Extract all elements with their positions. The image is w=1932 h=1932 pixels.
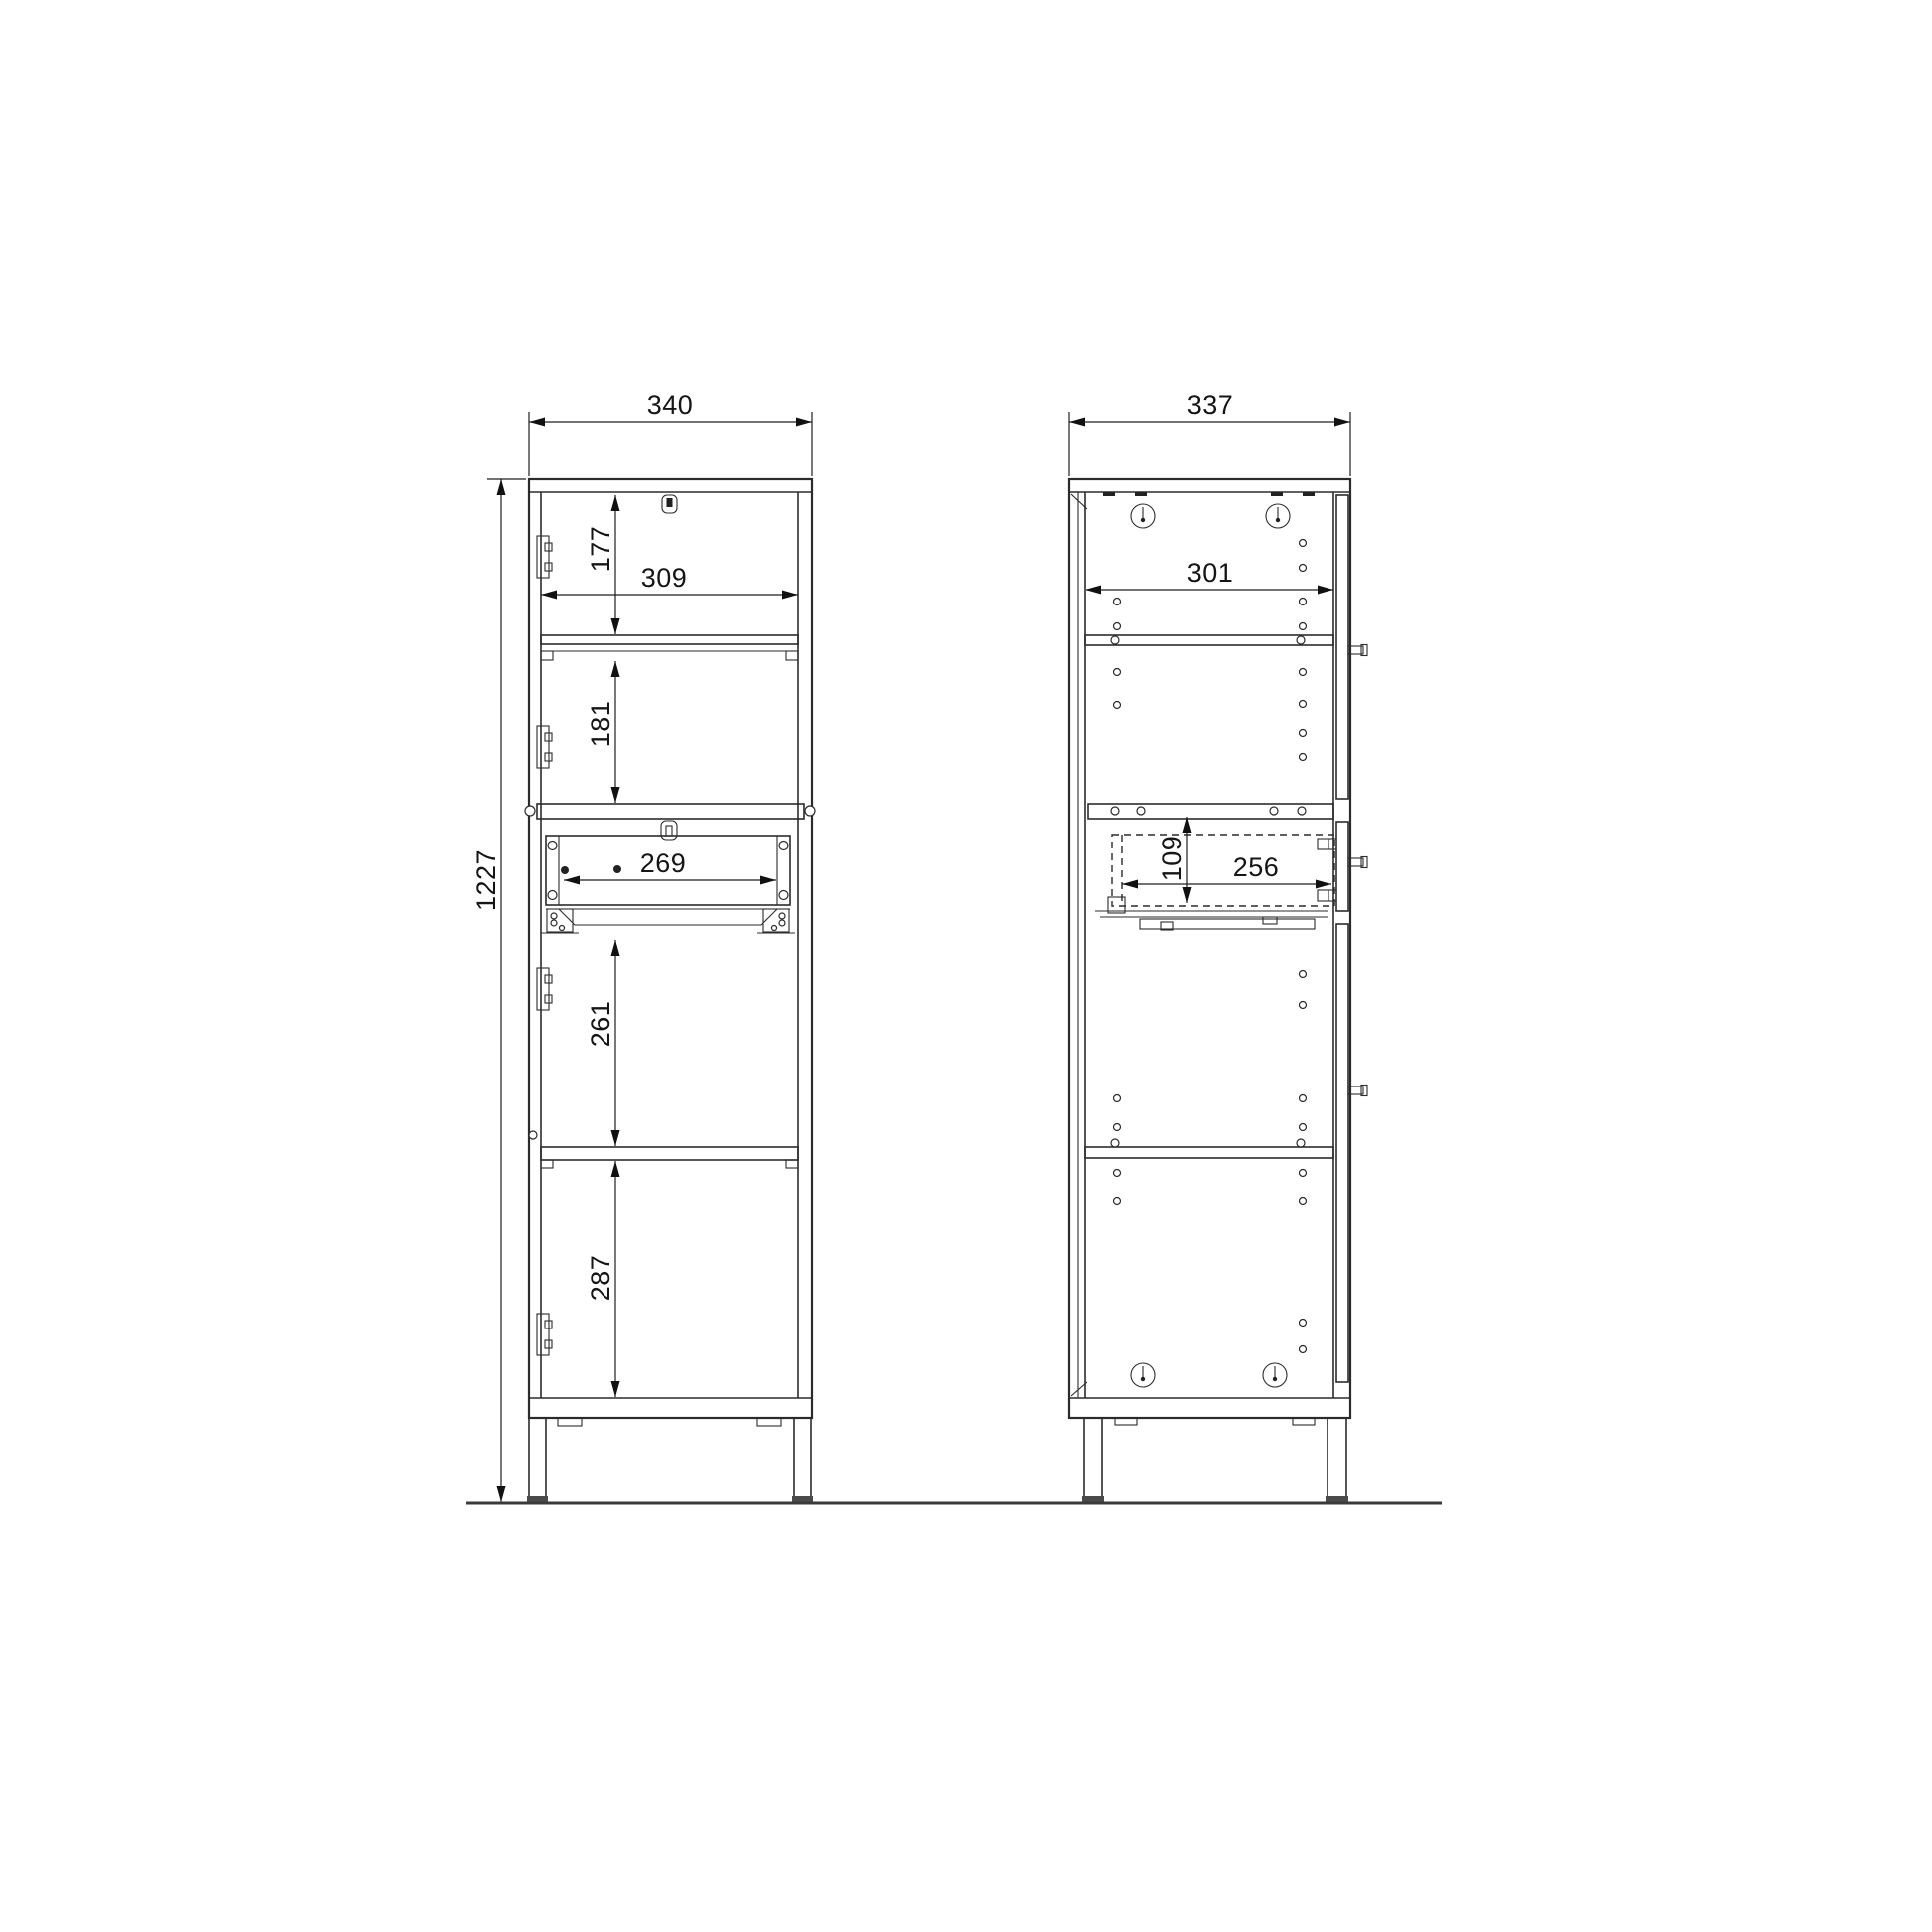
- dim-label-drawer-width: 269: [640, 848, 687, 878]
- fixed-divider-side: [1088, 804, 1333, 819]
- technical-drawing-page: 340 1227: [0, 0, 1932, 1932]
- drawer-runner-side-icon: [1095, 911, 1328, 930]
- dim-drawer-width: 269: [564, 848, 776, 885]
- shelf-pin-holes-left: [1114, 599, 1121, 1205]
- dim-bottom-section: 287: [586, 1161, 620, 1397]
- cabinet-drawing-svg: 340 1227: [0, 0, 1932, 1932]
- leg: [529, 1418, 546, 1498]
- dim-interior-width: 309: [541, 563, 798, 600]
- side-legs: [1082, 1418, 1348, 1503]
- screw-icon: [1266, 504, 1290, 528]
- hinge-icon: [537, 1314, 552, 1355]
- leg: [794, 1418, 811, 1498]
- dim-label-bottom-section: 287: [586, 1255, 615, 1302]
- drawer-runner-icon: [541, 909, 579, 933]
- dim-drawer-height: 109: [1157, 817, 1192, 903]
- dim-label-overall-depth: 337: [1187, 390, 1234, 420]
- dim-overall-width: 340: [529, 390, 812, 476]
- dim-overall-depth: 337: [1069, 390, 1350, 476]
- dim-label-interior-depth: 301: [1187, 558, 1234, 588]
- dim-top-section: 177: [586, 495, 620, 634]
- hinge-icon: [537, 536, 552, 578]
- dim-label-drawer-depth: 256: [1233, 852, 1280, 882]
- dim-label-top-section: 177: [586, 526, 615, 573]
- dim-drawer-depth: 256: [1122, 852, 1331, 889]
- shelf-lower: [529, 1131, 798, 1168]
- drawer-front: 269: [541, 836, 795, 933]
- front-legs: [527, 1418, 813, 1503]
- dim-interior-depth: 301: [1086, 558, 1333, 595]
- keyhole-icon: [662, 495, 677, 513]
- dim-second-section: 181: [586, 661, 620, 803]
- dim-third-section: 261: [586, 940, 620, 1146]
- fixed-divider: [525, 804, 815, 819]
- dim-label-interior-width: 309: [641, 563, 688, 593]
- front-cabinet-body: [529, 479, 812, 1418]
- dim-overall-height: 1227: [471, 479, 526, 1502]
- side-view: 337: [1069, 390, 1367, 1503]
- hinge-icon: [537, 726, 552, 768]
- shelf-pin-holes-right: [1300, 540, 1307, 1353]
- keyhole-icon: [661, 821, 677, 840]
- dim-label-drawer-height: 109: [1157, 836, 1187, 882]
- drawer-runner-icon: [757, 909, 795, 933]
- door-edge: [1336, 495, 1348, 1382]
- screw-icon: [1263, 1363, 1287, 1387]
- front-view: 340 1227: [471, 390, 815, 1503]
- dim-label-second-section: 181: [586, 701, 615, 748]
- shelf-upper-side: [1085, 635, 1333, 645]
- dim-label-third-section: 261: [586, 1001, 615, 1048]
- hinge-icon: [537, 968, 552, 1010]
- shelf-upper: [541, 635, 798, 660]
- dim-label-overall-height: 1227: [471, 849, 501, 911]
- screw-icon: [1131, 504, 1155, 528]
- drawer-side-view: 109 256: [1095, 817, 1343, 930]
- side-cabinet-body: [1069, 479, 1350, 1418]
- leg: [1328, 1418, 1346, 1498]
- screw-icon: [1131, 1363, 1155, 1387]
- shelf-lower-side: [1085, 1139, 1333, 1158]
- leg: [1084, 1418, 1102, 1498]
- dim-label-overall-width: 340: [647, 390, 694, 420]
